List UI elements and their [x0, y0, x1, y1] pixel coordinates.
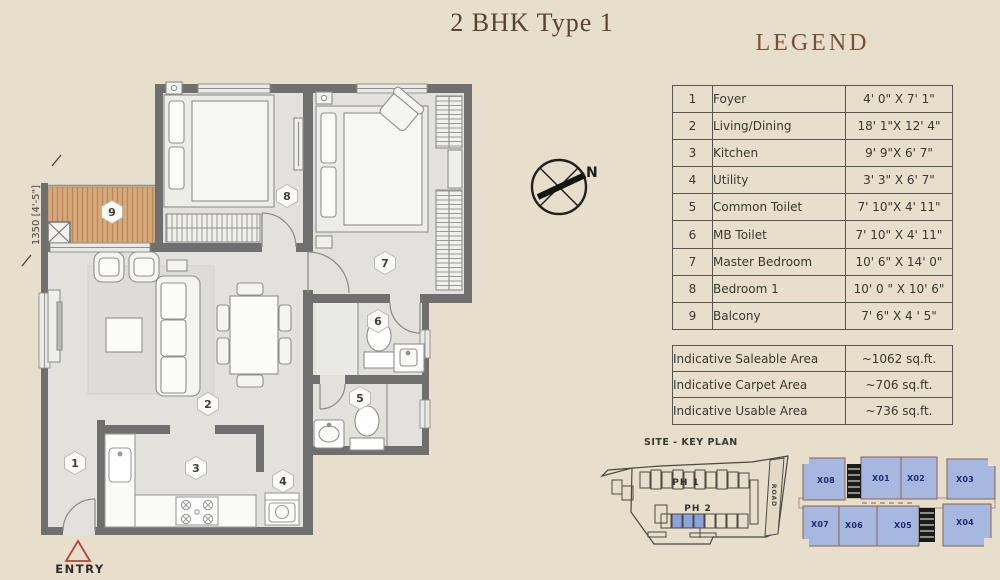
- legend-no: 6: [673, 221, 713, 248]
- entry-triangle-icon: [66, 541, 90, 561]
- unit-label-x04: X04: [950, 518, 980, 527]
- legend-row: 9Balcony7' 6" X 4 ' 5": [673, 302, 953, 329]
- legend-row: 6MB Toilet7' 10" X 4' 11": [673, 221, 953, 248]
- legend-row: 1Foyer4' 0" X 7' 1": [673, 86, 953, 113]
- unit-label-x01: X01: [866, 474, 896, 483]
- area-label: Indicative Usable Area: [673, 398, 846, 424]
- legend-row: 3Kitchen9' 9"X 6' 7": [673, 140, 953, 167]
- legend-table: 1Foyer4' 0" X 7' 1" 2Living/Dining18' 1"…: [672, 85, 953, 330]
- site-key-plan-title: SITE - KEY PLAN: [644, 437, 738, 448]
- legend-row: 4Utility3' 3" X 6' 7": [673, 167, 953, 194]
- legend-name: MB Toilet: [713, 221, 846, 248]
- legend-no: 7: [673, 248, 713, 275]
- legend-name: Foyer: [713, 86, 846, 113]
- legend-row: 5Common Toilet7' 10"X 4' 11": [673, 194, 953, 221]
- balcony-dimension-label: 1350 [4'-5"]: [31, 160, 51, 270]
- legend-no: 3: [673, 140, 713, 167]
- area-row: Indicative Saleable Area~1062 sq.ft.: [673, 346, 953, 372]
- legend-no: 8: [673, 275, 713, 302]
- legend-size: 7' 6" X 4 ' 5": [846, 302, 953, 329]
- legend-name: Common Toilet: [713, 194, 846, 221]
- legend-size: 10' 6" X 14' 0": [846, 248, 953, 275]
- legend-size: 10' 0 " X 10' 6": [846, 275, 953, 302]
- legend-row: 2Living/Dining18' 1"X 12' 4": [673, 113, 953, 140]
- page-title: 2 BHK Type 1: [382, 8, 682, 38]
- legend-size: 7' 10" X 4' 11": [846, 221, 953, 248]
- compass-icon: [532, 160, 586, 214]
- area-value: ~1062 sq.ft.: [846, 346, 953, 372]
- area-label: Indicative Saleable Area: [673, 346, 846, 372]
- legend-no: 1: [673, 86, 713, 113]
- site-ph2-label: PH 2: [678, 504, 718, 514]
- legend-size: 3' 3" X 6' 7": [846, 167, 953, 194]
- floor-plan-page: 2 BHK Type 1 LEGEND 1Foyer4' 0" X 7' 1" …: [0, 0, 1000, 580]
- balcony: [44, 186, 155, 244]
- unit-label-x02: X02: [901, 474, 931, 483]
- site-key-plan-drawing: [602, 456, 788, 544]
- site-ph1-label: PH 1: [666, 478, 706, 488]
- unit-key-plan-drawing: [799, 457, 996, 547]
- legend-no: 4: [673, 167, 713, 194]
- legend-title: LEGEND: [700, 30, 925, 57]
- legend-no: 9: [673, 302, 713, 329]
- legend-name: Utility: [713, 167, 846, 194]
- legend-size: 7' 10"X 4' 11": [846, 194, 953, 221]
- legend-row: 7Master Bedroom10' 6" X 14' 0": [673, 248, 953, 275]
- area-row: Indicative Carpet Area~706 sq.ft.: [673, 372, 953, 398]
- unit-label-x05: X05: [888, 521, 918, 530]
- legend-size: 9' 9"X 6' 7": [846, 140, 953, 167]
- site-road-label: ROAD: [770, 484, 777, 507]
- unit-label-x08: X08: [811, 476, 841, 485]
- unit-label-x06: X06: [839, 521, 869, 530]
- area-label: Indicative Carpet Area: [673, 372, 846, 398]
- area-table: Indicative Saleable Area~1062 sq.ft. Ind…: [672, 345, 953, 425]
- legend-no: 2: [673, 113, 713, 140]
- unit-label-x07: X07: [805, 520, 835, 529]
- legend-name: Kitchen: [713, 140, 846, 167]
- area-value: ~736 sq.ft.: [846, 398, 953, 424]
- legend-name: Master Bedroom: [713, 248, 846, 275]
- legend-size: 18' 1"X 12' 4": [846, 113, 953, 140]
- entry-label: ENTRY: [50, 562, 110, 576]
- legend-no: 5: [673, 194, 713, 221]
- legend-name: Bedroom 1: [713, 275, 846, 302]
- area-row: Indicative Usable Area~736 sq.ft.: [673, 398, 953, 424]
- legend-name: Living/Dining: [713, 113, 846, 140]
- compass-north-label: N: [586, 165, 598, 181]
- unit-label-x03: X03: [950, 475, 980, 484]
- legend-size: 4' 0" X 7' 1": [846, 86, 953, 113]
- legend-row: 8Bedroom 110' 0 " X 10' 6": [673, 275, 953, 302]
- area-value: ~706 sq.ft.: [846, 372, 953, 398]
- legend-name: Balcony: [713, 302, 846, 329]
